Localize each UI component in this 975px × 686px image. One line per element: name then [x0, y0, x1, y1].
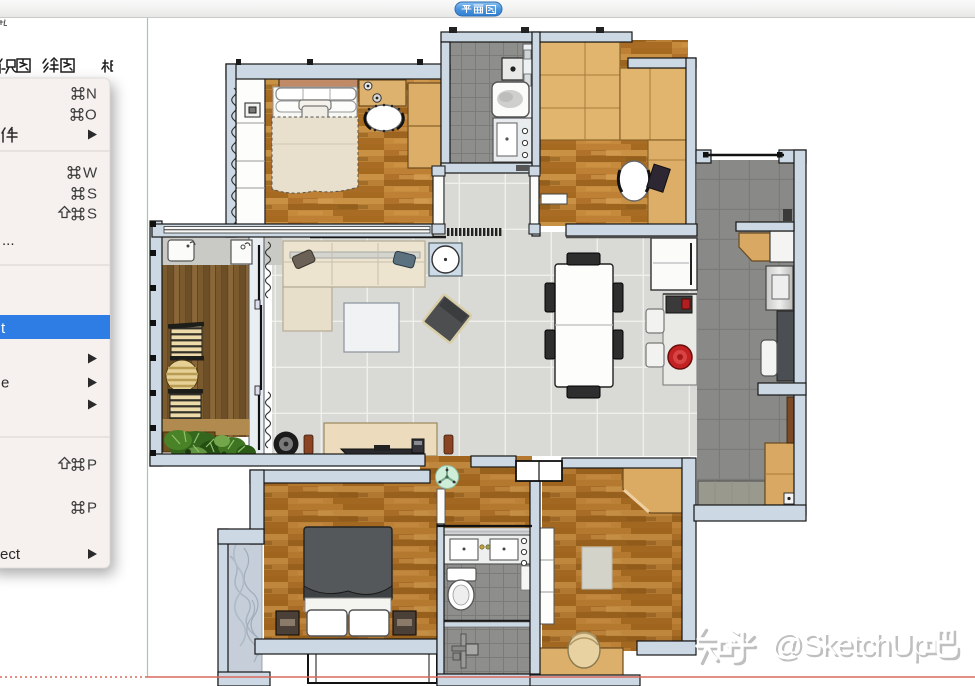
svg-text:P: P — [87, 457, 97, 474]
svg-text:S: S — [87, 186, 97, 203]
svg-text:e: e — [1, 375, 9, 392]
svg-text:...: ... — [2, 232, 15, 249]
svg-text:O: O — [85, 107, 97, 124]
svg-text:N: N — [86, 86, 97, 103]
svg-text:ect: ect — [0, 546, 21, 563]
svg-text:W: W — [83, 165, 98, 182]
svg-text:@SketchUp: @SketchUp — [771, 627, 928, 662]
svg-text:P: P — [87, 500, 97, 517]
svg-text:S: S — [87, 206, 97, 223]
